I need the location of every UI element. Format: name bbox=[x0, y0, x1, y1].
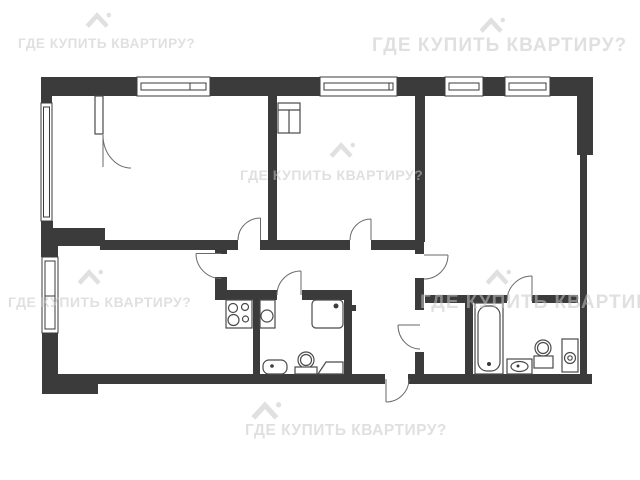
kitchen-sink-icon bbox=[260, 300, 275, 328]
duct-shaft-icon bbox=[278, 103, 300, 133]
door-swing-icon bbox=[507, 276, 532, 301]
window-icon bbox=[505, 77, 550, 96]
door-swing-icon bbox=[350, 219, 371, 240]
washbasin-icon bbox=[507, 359, 532, 374]
toilet-icon bbox=[295, 352, 317, 374]
door-swing-icon bbox=[424, 255, 448, 279]
window-icon bbox=[320, 77, 397, 96]
washbasin-icon bbox=[263, 360, 287, 374]
window-icon bbox=[42, 257, 58, 333]
fixtures bbox=[95, 96, 578, 374]
floor-plan bbox=[0, 0, 640, 480]
door-swing-icon bbox=[238, 218, 261, 240]
window-icon bbox=[445, 77, 483, 96]
stove-icon bbox=[226, 300, 252, 328]
toilet-icon bbox=[534, 340, 553, 368]
shower-tray-icon bbox=[312, 300, 343, 328]
floor-plan-page: { "page": { "background": "#ffffff", "ki… bbox=[0, 0, 640, 480]
corner-cabinet-icon bbox=[318, 362, 343, 374]
walls bbox=[41, 77, 593, 394]
window-icon bbox=[41, 103, 52, 221]
balcony-door-swing-icon bbox=[103, 135, 131, 168]
pilaster-icon bbox=[95, 96, 103, 134]
bathtub-icon bbox=[475, 303, 503, 374]
washing-machine-icon bbox=[562, 339, 578, 372]
door-swing-icon bbox=[398, 325, 420, 349]
window-icon bbox=[137, 77, 210, 96]
